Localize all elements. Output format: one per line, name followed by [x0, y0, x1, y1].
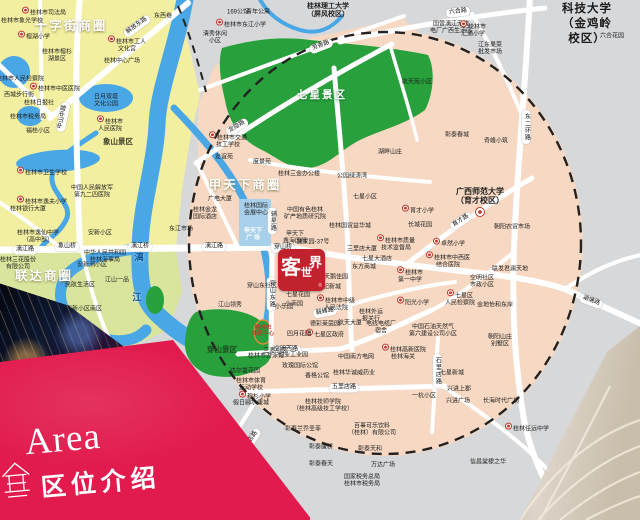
logo-char-3: 界	[309, 252, 322, 271]
logo-char-1: 客	[281, 251, 301, 280]
banner-title-zh: 区位介绍	[39, 458, 162, 504]
convention-center-block	[239, 199, 271, 246]
banner-title-en: Area	[23, 415, 102, 464]
location-map-page: 十字街商圈甲天下商圈联达商圈七星景区穿山景区象山景区桂林电子科技大学 （金鸡岭校…	[0, 0, 640, 520]
pavilion-icon	[0, 457, 32, 507]
logo-mark: ®	[318, 283, 322, 289]
project-logo-keshijie: 客 世 界 ®	[278, 249, 325, 291]
